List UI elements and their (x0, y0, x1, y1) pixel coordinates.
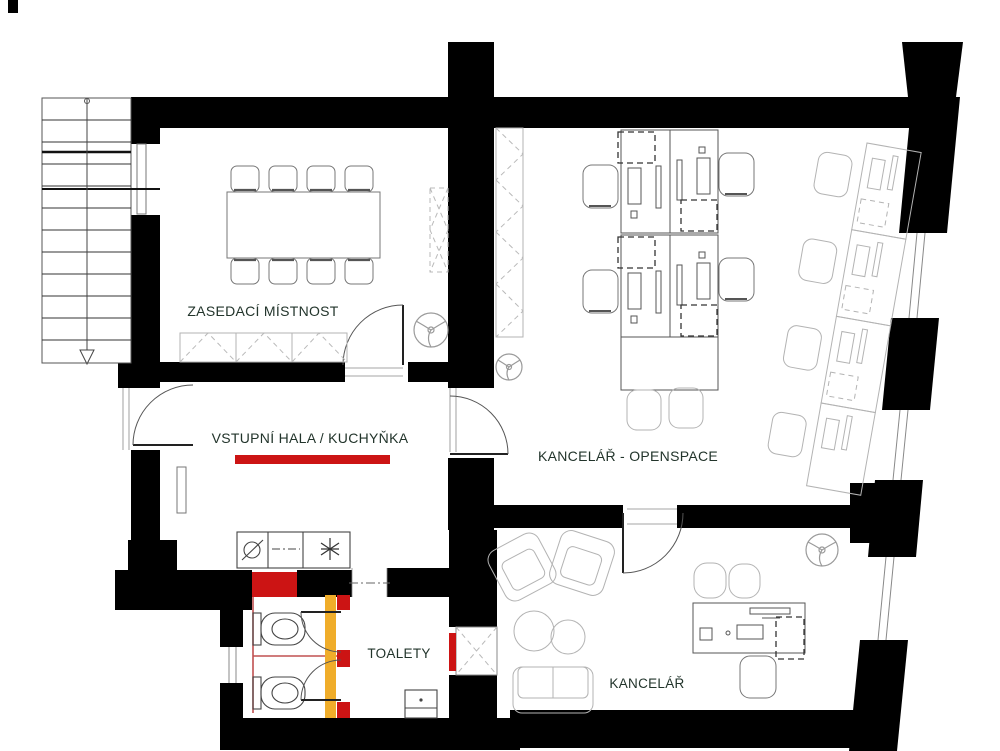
ceiling-fan-icon (806, 534, 838, 566)
toilet-icon (253, 613, 305, 645)
windows (137, 144, 925, 683)
round-table (551, 620, 585, 654)
kitchen-counter (237, 532, 350, 568)
room-label-openspace: KANCELÁŘ - OPENSPACE (538, 448, 718, 464)
office-desk (693, 603, 805, 659)
room-label-toilets: TOALETY (367, 646, 430, 661)
hob-star-icon (321, 538, 339, 560)
shower-niche (449, 627, 497, 675)
round-table (514, 611, 554, 651)
window-stair-landing (137, 144, 146, 214)
meeting-tall-cabinet (430, 188, 448, 272)
window-right-3 (878, 557, 894, 640)
ceiling-fan-icon (496, 354, 522, 380)
kitchen-highlight-bar (235, 455, 390, 464)
ceiling-fan-icon (414, 313, 448, 347)
meeting-room-furniture (180, 166, 448, 362)
desk-chair (740, 656, 776, 698)
desk-block-b (583, 235, 754, 337)
desk-block-a (583, 130, 754, 233)
toilet-icon (253, 677, 305, 709)
meeting-cabinets (180, 333, 347, 362)
sink-icon (242, 540, 263, 560)
washbasin-icon (405, 690, 437, 718)
room-label-office: KANCELÁŘ (609, 676, 684, 691)
door-hall-left (123, 385, 193, 450)
radiator (177, 467, 186, 513)
visitor-chair (729, 564, 760, 598)
door-openspace-to-office (623, 509, 683, 573)
conference-chairs (231, 166, 373, 284)
armchair (547, 528, 618, 599)
room-label-meeting: ZASEDACÍ MÍSTNOST (187, 303, 338, 319)
conference-table (227, 192, 380, 258)
stairs-direction-arrow-icon (80, 350, 94, 364)
openspace-furniture (496, 128, 921, 495)
sofa (513, 667, 593, 713)
window-left-toilets (229, 647, 236, 683)
toilet-corridor-opening (349, 568, 390, 597)
door-meeting-to-hall (343, 305, 403, 376)
desk-block-c (621, 337, 718, 430)
openspace-wardrobe (496, 128, 523, 337)
new-wall-block (252, 572, 297, 597)
visitor-chair (694, 563, 726, 598)
door-hall-to-openspace (450, 388, 508, 454)
window-right-1 (909, 233, 925, 318)
window-right-2 (893, 410, 908, 480)
room-label-hall: VSTUPNÍ HALA / KUCHYŇKA (212, 430, 409, 446)
floor-plan-drawing (0, 0, 1000, 751)
floor-plan: ZASEDACÍ MÍSTNOST VSTUPNÍ HALA / KUCHYŇK… (0, 0, 1000, 751)
